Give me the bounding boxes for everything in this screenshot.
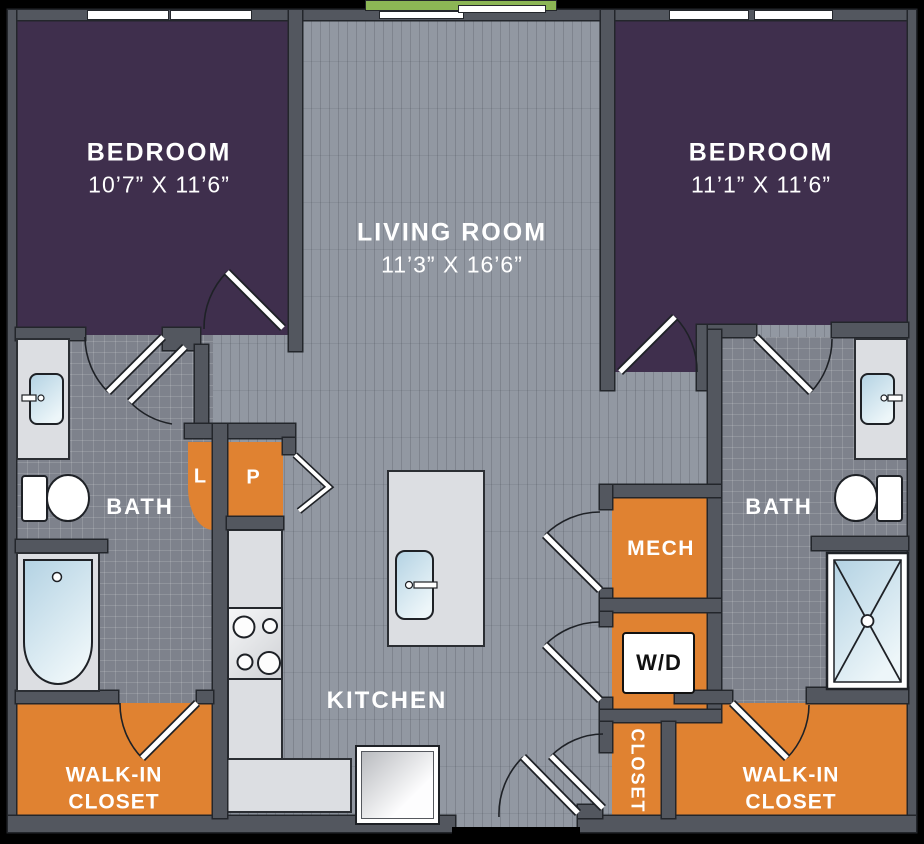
wall-segment xyxy=(578,816,916,832)
wall-segment xyxy=(227,517,283,529)
closet-label: CLOSET xyxy=(627,728,648,813)
refrigerator xyxy=(355,745,440,825)
wall-segment xyxy=(832,323,908,337)
wall-segment xyxy=(908,10,916,832)
wall-segment xyxy=(8,10,16,832)
sliding-door-panel xyxy=(458,5,546,13)
wall-segment xyxy=(708,330,721,722)
wall-segment xyxy=(600,599,721,612)
wall-segment xyxy=(283,438,295,454)
walk-in-closet2-line1: WALK-IN xyxy=(743,764,840,787)
kitchen-island xyxy=(387,470,485,647)
bathtub-surround xyxy=(16,552,100,692)
pantry-label: P xyxy=(246,467,261,490)
linen-closet-label: L xyxy=(194,466,208,489)
wall-segment xyxy=(601,10,614,390)
wall-segment xyxy=(600,612,612,626)
wall-segment xyxy=(578,805,602,818)
kitchen-counter-bottom xyxy=(227,758,352,813)
wall-segment xyxy=(195,345,208,431)
wall-segment xyxy=(812,537,908,550)
bedroom1-dimensions: 10’7” X 11’6” xyxy=(88,172,230,199)
wall-segment xyxy=(213,424,227,818)
bedroom2-label: BEDROOM xyxy=(689,139,834,168)
wall-segment xyxy=(600,485,612,509)
washer-dryer-label: W/D xyxy=(636,650,682,676)
living-room-label: LIVING ROOM xyxy=(357,219,547,248)
sliding-door-panel xyxy=(379,11,464,19)
living-room-dimensions: 11’3” X 16’6” xyxy=(381,252,523,279)
bath2-label: BATH xyxy=(745,494,812,520)
bath1-label: BATH xyxy=(106,494,173,520)
bedroom2-window xyxy=(754,10,833,20)
walk-in-closet1-label: WALK-IN CLOSET xyxy=(66,762,163,817)
bedroom1-window xyxy=(87,10,169,20)
walk-in-closet2-label: WALK-IN CLOSET xyxy=(743,762,840,817)
entry-opening xyxy=(452,827,580,844)
stove xyxy=(227,607,283,680)
wall-segment xyxy=(16,540,107,552)
wall-segment xyxy=(600,485,721,497)
wall-segment xyxy=(197,691,213,703)
wall-segment xyxy=(600,722,612,752)
bedroom1-label: BEDROOM xyxy=(87,139,232,168)
bath2-vanity xyxy=(854,338,908,460)
wall-segment xyxy=(185,424,295,438)
wall-segment xyxy=(600,710,721,722)
wall-segment xyxy=(16,691,118,703)
walk-in-closet1-line1: WALK-IN xyxy=(66,764,163,787)
mech-label: MECH xyxy=(627,537,695,561)
bedroom2-dimensions: 11’1” X 11’6” xyxy=(691,172,831,199)
bedroom2-door-nook xyxy=(612,325,697,372)
bedroom1-window xyxy=(170,10,252,20)
wall-segment xyxy=(289,10,302,351)
bath1-vanity xyxy=(16,338,70,460)
floor-plan: BEDROOM 10’7” X 11’6” BEDROOM 11’1” X 11… xyxy=(0,0,924,844)
refrigerator-front xyxy=(361,751,434,819)
walk-in-closet1-line2: CLOSET xyxy=(68,791,159,814)
bedroom2-window xyxy=(669,10,749,20)
wall-segment xyxy=(807,688,908,703)
walk-in-closet2-line2: CLOSET xyxy=(745,791,836,814)
kitchen-label: KITCHEN xyxy=(327,687,448,715)
wall-segment xyxy=(662,722,675,818)
